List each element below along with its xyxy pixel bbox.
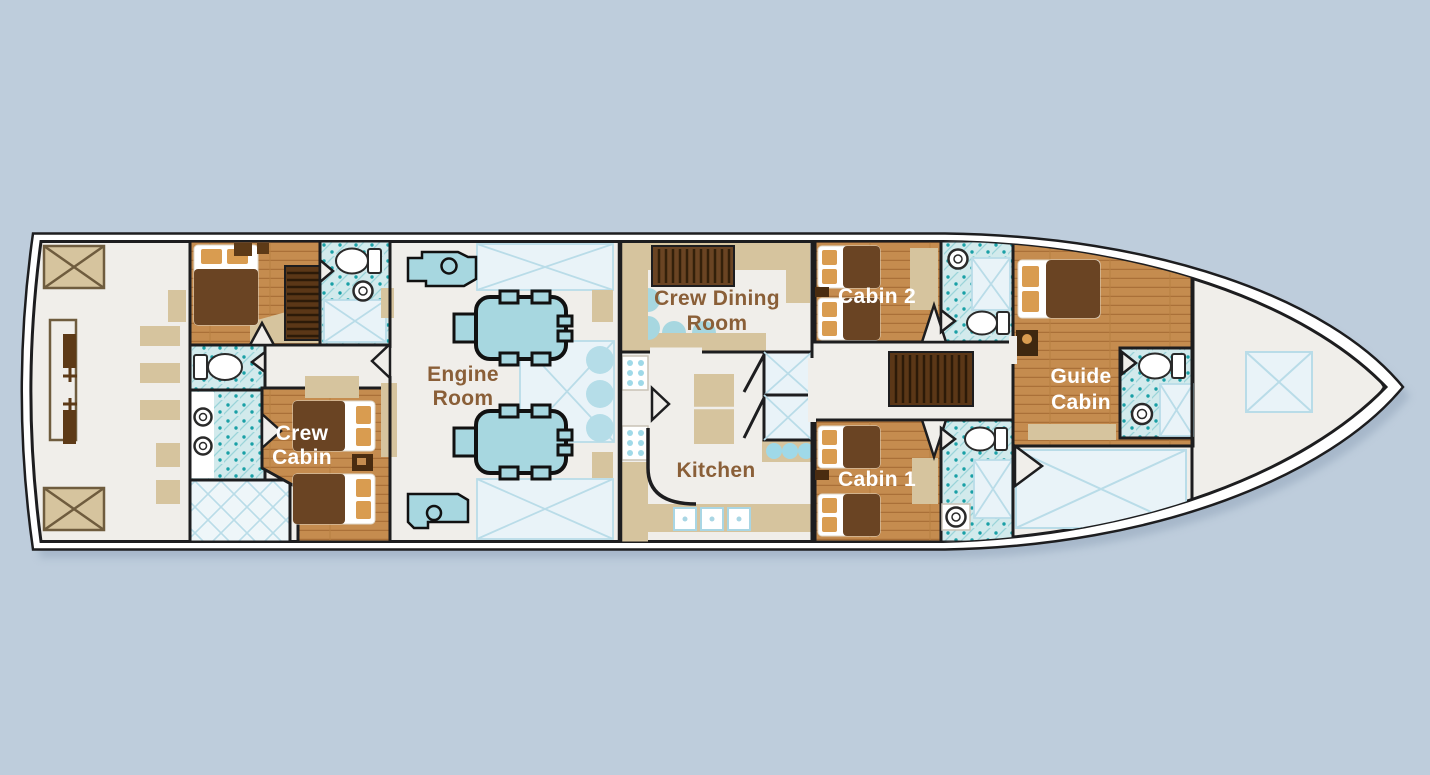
wc-room (190, 345, 265, 390)
bench (1028, 424, 1116, 440)
nightstand-detail (357, 458, 366, 465)
aft-bathroom (320, 241, 390, 345)
cabin-1-label: Cabin 1 (838, 468, 916, 491)
appliance-icon (674, 508, 696, 530)
toilet-icon (194, 354, 242, 380)
sink-icon (947, 508, 966, 527)
seat-icon (156, 480, 180, 504)
appliance-icon (701, 508, 723, 530)
sink-counter (762, 440, 814, 462)
shelf-icon (257, 243, 269, 254)
sink-icon (1132, 404, 1152, 424)
deck-hatch-icon (477, 479, 613, 539)
shower-icon (972, 258, 1010, 310)
toilet-icon (336, 249, 381, 274)
cabinet (381, 288, 394, 318)
shower-icon (974, 460, 1012, 518)
sink-icon (195, 438, 212, 455)
door-opening (1009, 336, 1017, 364)
appliance-icon (728, 508, 750, 530)
stairs-icon (889, 352, 973, 406)
seat-icon (140, 400, 180, 420)
nightstand-icon (815, 470, 829, 480)
crew-dining-room-label-line1: Crew Dining (654, 287, 780, 310)
nightstand-icon (1016, 330, 1038, 356)
deck-box-icon (44, 246, 104, 288)
toilet-icon (1139, 354, 1185, 379)
crew-dining-room-label-line2: Room (687, 312, 748, 335)
wash-room (190, 390, 265, 480)
bed-icon (818, 426, 880, 468)
desk-icon (305, 376, 359, 398)
dining-table-icon (652, 246, 734, 286)
door-opening (808, 358, 816, 422)
deck-hatch-icon (1246, 352, 1312, 412)
bed-icon (818, 246, 880, 288)
engine-room-label-line1: Engine (427, 363, 499, 386)
engine-room-label-line2: Room (433, 387, 494, 410)
toilet-icon (967, 312, 1009, 335)
guide-cabin-label-line2: Cabin (1051, 391, 1111, 414)
counter (786, 243, 810, 303)
toilet-icon (965, 428, 1007, 451)
seat-icon (140, 363, 180, 383)
sink-icon (195, 409, 212, 426)
cabinet (592, 290, 613, 322)
cabin-2-label: Cabin 2 (838, 285, 916, 308)
shelf-icon (234, 243, 252, 256)
kitchen-label: Kitchen (676, 459, 755, 482)
counter (622, 462, 648, 542)
sink-counter (191, 392, 214, 478)
cabin-2-bathroom (941, 241, 1013, 342)
bed-icon (1018, 260, 1100, 318)
deck-box-icon (44, 488, 104, 530)
generator-icon (408, 494, 468, 528)
seat-icon (168, 290, 186, 322)
bed-icon (293, 474, 375, 524)
sink-icon (354, 282, 373, 301)
stove-icon (622, 426, 648, 460)
sink-icon (949, 250, 968, 269)
tank-icon (586, 346, 614, 374)
shower-icon (1160, 384, 1193, 436)
tank-icon (586, 380, 614, 408)
crew-cabin-label-line1: Crew (276, 422, 329, 445)
nightstand-icon (815, 287, 829, 297)
tank-icon (586, 414, 614, 442)
cold-room-icon (764, 352, 812, 395)
bed-icon (194, 245, 258, 325)
yacht-deck-plan: Crew Cabin Engine Room Crew Dining Room … (0, 0, 1430, 775)
bench (622, 243, 648, 353)
seat-icon (140, 326, 180, 346)
crew-cabin-label-line2: Cabin (272, 446, 332, 469)
deck-hatch-icon (477, 244, 613, 290)
guide-cabin-label-line1: Guide (1050, 365, 1111, 388)
cabinet (592, 452, 613, 478)
bed-icon (818, 494, 880, 536)
seat-icon (156, 443, 180, 467)
stove-icon (622, 356, 648, 390)
cold-room-icon (764, 395, 812, 440)
generator-icon (408, 252, 476, 286)
shower-icon (324, 300, 386, 342)
shower-room (190, 480, 290, 542)
door-opening (650, 348, 702, 357)
